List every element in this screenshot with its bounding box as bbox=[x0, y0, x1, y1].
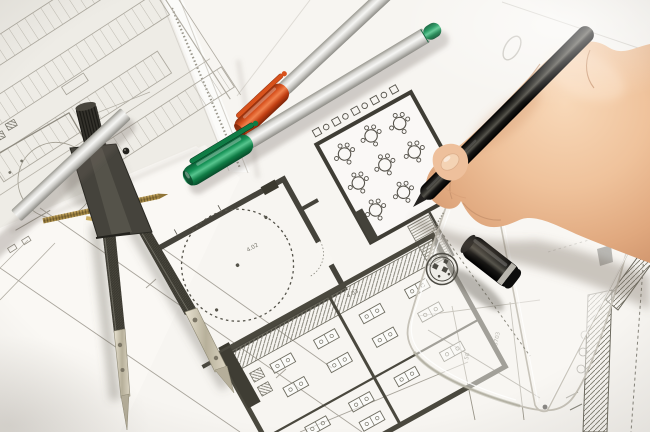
scene-photo: 4.02 4.03 58 5703 bbox=[0, 0, 650, 432]
photo-architect-desk: 4.02 4.03 58 5703 bbox=[0, 0, 650, 432]
